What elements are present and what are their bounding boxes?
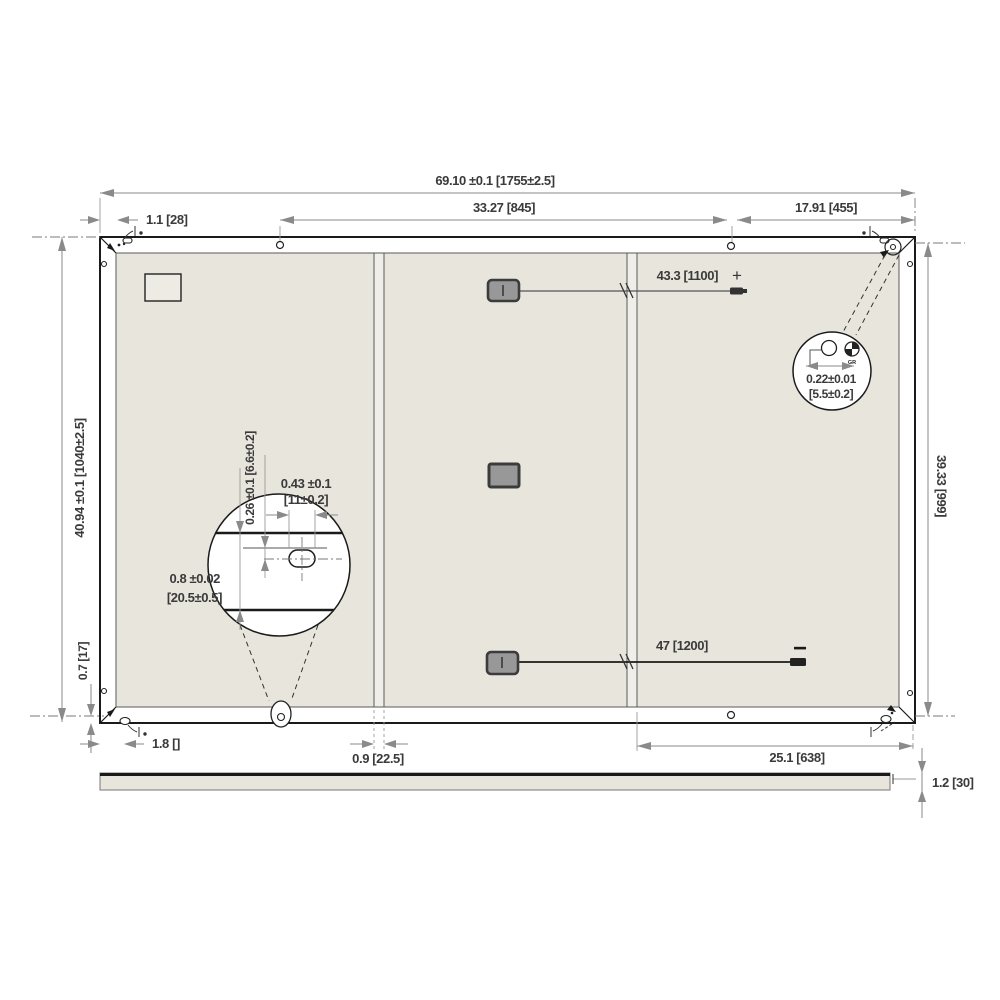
dim-arrow <box>87 723 95 735</box>
mount-span-top-label: 33.27 [845] <box>473 200 535 215</box>
dim-arrow <box>918 761 926 773</box>
dims-right: 39.33 [999] <box>915 243 965 716</box>
dim-arrow <box>901 189 915 197</box>
datum-tick-bottom-left <box>128 725 146 737</box>
positive-connector <box>730 288 743 295</box>
slot-width-mm-label: [11±0.2] <box>284 492 328 507</box>
dim-arrow <box>124 740 136 748</box>
ground-hole <box>822 341 837 356</box>
minus-sign: − <box>793 635 807 662</box>
frame-width-bottom-label: 1.8 [] <box>152 736 180 751</box>
side-hole-right-top <box>908 262 913 267</box>
dim-arrow <box>899 742 913 750</box>
corner-slot-bottom-left <box>120 718 130 725</box>
frame-depth-label: 0.8 ±0.02 <box>169 571 220 586</box>
mounting-rail-right <box>627 253 637 707</box>
dim-arrow <box>713 216 727 224</box>
side-hole-left-bottom <box>102 689 107 694</box>
dim-arrow <box>88 740 100 748</box>
dim-arrow <box>737 216 751 224</box>
mounting-hole-bottom-right <box>728 712 735 719</box>
rivet-dot <box>118 244 121 247</box>
side-hole-right-bottom <box>908 691 913 696</box>
ground-hole-dia-mm-label: [5.5±0.2] <box>809 387 854 401</box>
detail-a-slot-hole <box>278 714 285 721</box>
edge-offset-label: 0.26 ±0.1 [6.6±0.2] <box>243 431 257 525</box>
dims-top: 69.10 ±0.1 [1755±2.5] 33.27 [845] 17.91 … <box>80 173 915 242</box>
dim-arrow <box>100 189 114 197</box>
rail-width-label: 0.9 [22.5] <box>352 751 404 766</box>
positive-connector-tip <box>743 289 747 293</box>
overall-width-label: 69.10 ±0.1 [1755±2.5] <box>435 173 554 188</box>
mounting-hole-top-right <box>728 243 735 250</box>
mounting-rail-left <box>374 253 384 707</box>
thickness-label: 1.2 [30] <box>932 775 974 790</box>
dim-arrow <box>637 742 651 750</box>
dim-arrow <box>918 790 926 802</box>
dim-arrow <box>117 216 129 224</box>
rivet-dot <box>891 712 894 715</box>
dim-arrow <box>87 704 95 716</box>
bottom-right-span-label: 25.1 [638] <box>769 750 824 765</box>
frame-depth-mm-label: [20.5±0.5] <box>167 590 222 605</box>
dim-arrow <box>280 216 294 224</box>
frame-width-top-label: 1.1 [28] <box>146 212 188 227</box>
dim-arrow <box>58 708 66 722</box>
cable-positive-length-label: 43.3 [1100] <box>657 268 718 283</box>
technical-drawing-page: + 43.3 [1100] − 47 [1200] 0.43 ±0.1 <box>0 0 1000 1000</box>
side-hole-left-top <box>102 262 107 267</box>
dim-arrow <box>362 740 374 748</box>
dim-arrow <box>901 216 915 224</box>
dim-arrow <box>58 237 66 251</box>
cable-negative-length-label: 47 [1200] <box>656 638 708 653</box>
mounting-hole-top-left <box>277 242 284 249</box>
mount-height-right-label: 39.33 [999] <box>934 455 949 517</box>
dim-arrow <box>384 740 396 748</box>
top-right-span-label: 17.91 [455] <box>795 200 857 215</box>
nameplate <box>145 274 181 301</box>
rivet-dot <box>123 243 125 245</box>
dim-arrow <box>88 216 100 224</box>
dim-arrow <box>924 702 932 716</box>
ground-hole-dia-label: 0.22±0.01 <box>806 372 856 386</box>
plus-sign: + <box>732 266 742 285</box>
panel-side-view: 1.2 [30] <box>100 748 974 818</box>
dims-left: 40.94 ±0.1 [1040±2.5] 0.7 [17] <box>30 237 104 753</box>
dim-arrow <box>924 243 932 257</box>
junction-box-middle <box>489 464 519 487</box>
corner-slot-bottom-right <box>881 716 891 723</box>
datum-tick-bottom-right <box>871 722 895 737</box>
detail-b-origin-hole <box>891 245 896 250</box>
overall-height-label: 40.94 ±0.1 [1040±2.5] <box>72 418 87 537</box>
slot-width-label: 0.43 ±0.1 <box>281 476 332 491</box>
bottom-edge-offset-label: 0.7 [17] <box>76 642 90 681</box>
panel-drawing-svg: + 43.3 [1100] − 47 [1200] 0.43 ±0.1 <box>0 0 1000 1000</box>
